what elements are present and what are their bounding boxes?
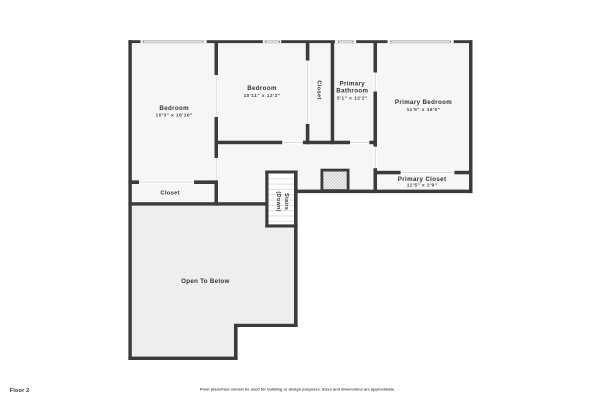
svg-text:Closet: Closet [315,80,321,100]
svg-text:Floor 2: Floor 2 [10,388,30,394]
svg-text:10'11" x 12'2": 10'11" x 12'2" [244,93,281,99]
svg-text:10'3" x 16'10": 10'3" x 16'10" [156,113,193,119]
svg-text:Closet: Closet [160,191,180,197]
svg-text:Open To Below: Open To Below [181,278,229,285]
svg-text:Primary: Primary [340,80,366,87]
svg-text:11'5" x 16'0": 11'5" x 16'0" [407,107,441,113]
svg-text:11'5" x 2'9": 11'5" x 2'9" [407,182,438,188]
svg-text:Stairs: Stairs [283,193,289,210]
svg-text:Bedroom: Bedroom [159,105,189,112]
svg-text:Bathroom: Bathroom [336,87,368,94]
svg-text:Floor plans/tour cannot be use: Floor plans/tour cannot be used for buil… [200,388,395,392]
svg-text:(Down): (Down) [275,191,281,211]
svg-text:Bedroom: Bedroom [247,85,277,92]
svg-text:5'1" x 12'2": 5'1" x 12'2" [337,96,368,102]
svg-text:Primary Closet: Primary Closet [398,176,447,183]
svg-text:Primary Bedroom: Primary Bedroom [395,99,452,106]
